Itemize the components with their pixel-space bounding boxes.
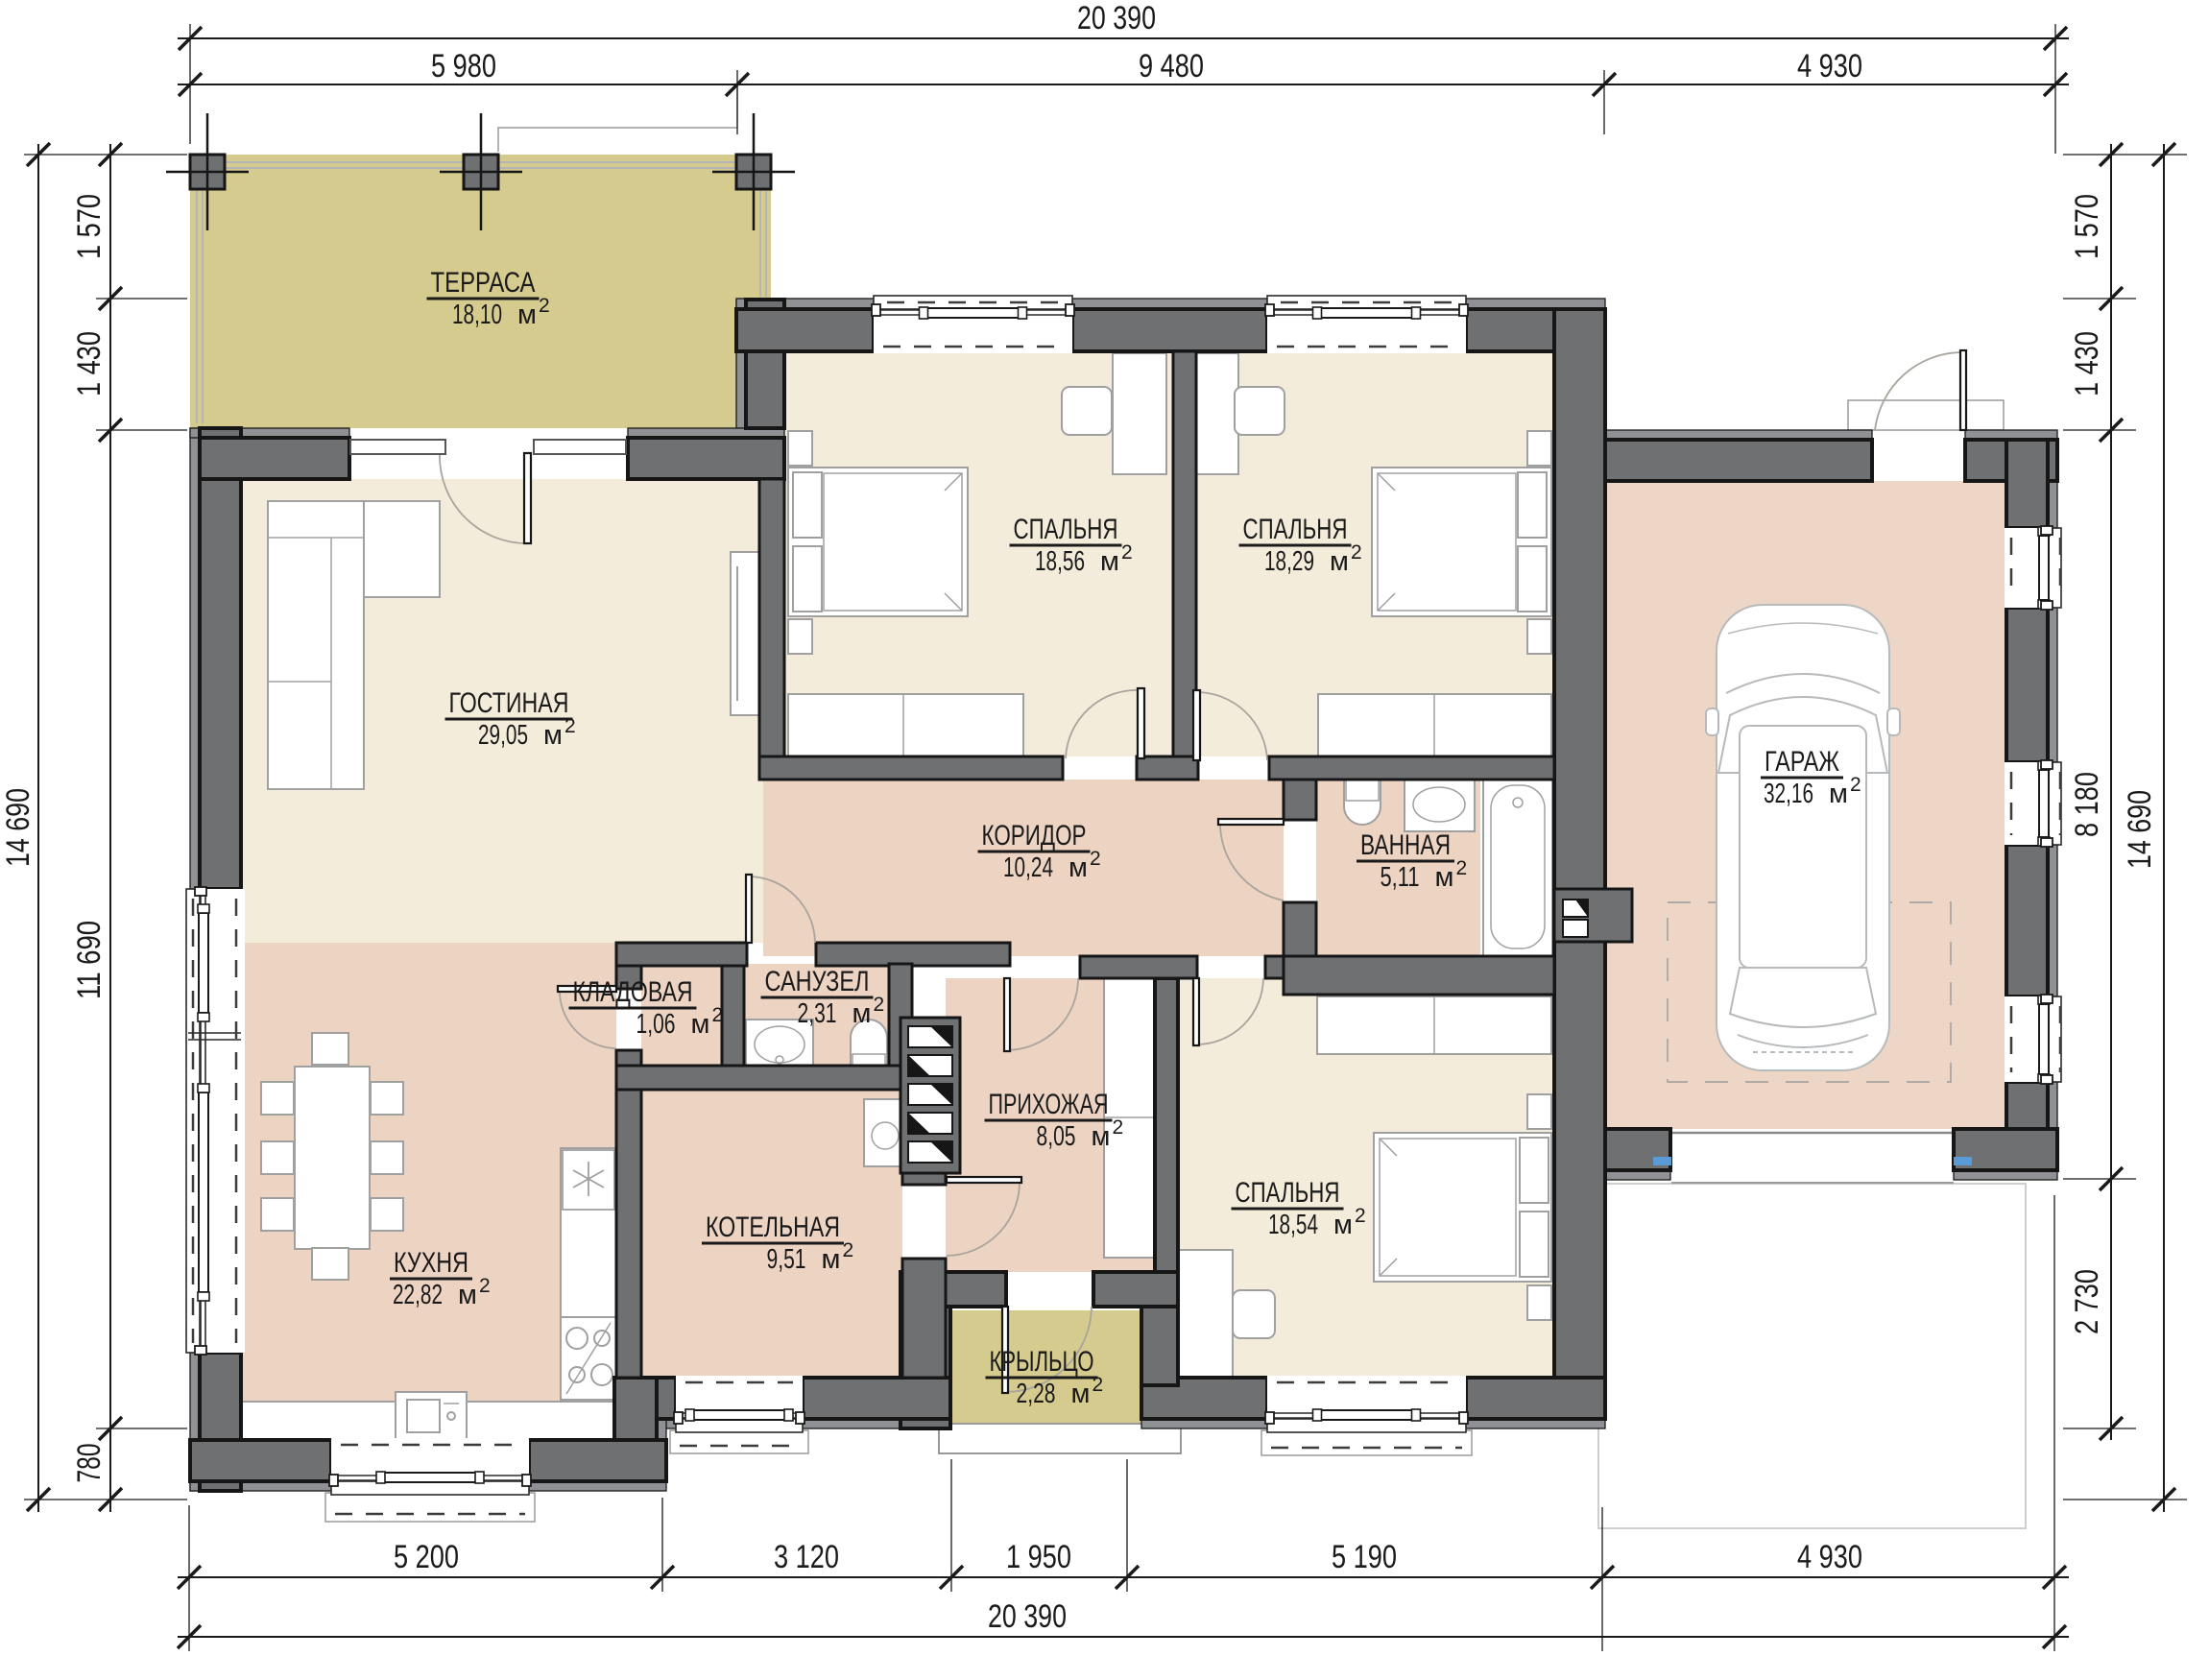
svg-text:1 430: 1 430 (2069, 331, 2105, 396)
svg-text:2: 2 (843, 1239, 854, 1261)
svg-text:3 120: 3 120 (774, 1539, 839, 1575)
svg-text:2,28: 2,28 (1017, 1379, 1056, 1409)
svg-text:м: м (1333, 1210, 1353, 1240)
svg-text:18,10: 18,10 (452, 300, 502, 330)
svg-text:КОТЕЛЬНАЯ: КОТЕЛЬНАЯ (706, 1212, 840, 1243)
svg-text:780: 780 (71, 1444, 108, 1483)
svg-text:5 980: 5 980 (431, 48, 496, 84)
svg-text:м: м (1071, 1379, 1091, 1409)
svg-text:32,16: 32,16 (1764, 779, 1813, 809)
svg-text:2: 2 (539, 295, 550, 317)
svg-text:4 930: 4 930 (1797, 48, 1862, 84)
svg-text:8 180: 8 180 (2069, 772, 2105, 837)
svg-text:ТЕРРАСА: ТЕРРАСА (431, 267, 536, 299)
svg-text:ПРИХОЖАЯ: ПРИХОЖАЯ (989, 1089, 1109, 1120)
svg-text:10,24: 10,24 (1003, 852, 1053, 883)
svg-text:м: м (517, 300, 537, 330)
svg-text:КРЫЛЬЦО: КРЫЛЬЦО (990, 1346, 1094, 1378)
svg-text:м: м (1435, 862, 1454, 893)
svg-text:КУХНЯ: КУХНЯ (394, 1247, 468, 1279)
svg-text:22,82: 22,82 (393, 1280, 443, 1310)
svg-text:СПАЛЬНЯ: СПАЛЬНЯ (1243, 514, 1348, 545)
svg-text:2: 2 (1121, 541, 1133, 564)
svg-text:2: 2 (1092, 1374, 1104, 1396)
svg-text:2: 2 (874, 994, 885, 1016)
svg-text:9 480: 9 480 (1139, 48, 1204, 84)
svg-text:ГОСТИНАЯ: ГОСТИНАЯ (449, 687, 569, 719)
svg-text:КОРИДОР: КОРИДОР (982, 820, 1087, 852)
svg-text:4 930: 4 930 (1797, 1539, 1862, 1575)
svg-text:14 690: 14 690 (0, 788, 36, 867)
svg-text:29,05: 29,05 (478, 720, 528, 751)
svg-text:18,29: 18,29 (1264, 546, 1314, 577)
svg-text:м: м (691, 1009, 710, 1040)
svg-text:2: 2 (1355, 1205, 1366, 1227)
svg-text:2: 2 (712, 1004, 724, 1026)
svg-text:5 190: 5 190 (1332, 1539, 1397, 1575)
svg-text:м: м (1330, 546, 1349, 577)
svg-text:1 950: 1 950 (1006, 1539, 1071, 1575)
svg-text:5,11: 5,11 (1381, 862, 1420, 893)
svg-text:2: 2 (1113, 1116, 1124, 1139)
svg-text:20 390: 20 390 (988, 1598, 1067, 1635)
svg-text:2,31: 2,31 (798, 998, 837, 1029)
svg-text:1 570: 1 570 (71, 194, 108, 259)
svg-text:1 570: 1 570 (2069, 194, 2105, 259)
svg-text:2: 2 (1456, 857, 1468, 879)
svg-text:14 690: 14 690 (2122, 790, 2158, 869)
svg-text:2 730: 2 730 (2069, 1269, 2105, 1334)
svg-text:2: 2 (1850, 774, 1861, 796)
svg-text:2: 2 (1090, 848, 1101, 870)
svg-text:1 430: 1 430 (71, 331, 108, 396)
svg-text:2: 2 (479, 1275, 491, 1297)
svg-text:м: м (1092, 1121, 1111, 1152)
svg-text:2: 2 (564, 715, 576, 737)
svg-text:м: м (1068, 852, 1088, 883)
svg-text:1,06: 1,06 (636, 1009, 676, 1040)
svg-text:8,05: 8,05 (1037, 1121, 1076, 1152)
svg-text:м: м (543, 720, 563, 751)
svg-text:м: м (458, 1280, 477, 1310)
svg-text:м: м (1100, 546, 1119, 577)
svg-text:11 690: 11 690 (71, 921, 108, 999)
svg-text:ГАРАЖ: ГАРАЖ (1765, 746, 1839, 778)
svg-text:СПАЛЬНЯ: СПАЛЬНЯ (1236, 1177, 1340, 1209)
svg-text:18,56: 18,56 (1035, 546, 1085, 577)
svg-text:СПАЛЬНЯ: СПАЛЬНЯ (1014, 514, 1118, 545)
svg-text:20 390: 20 390 (1077, 0, 1156, 36)
svg-text:САНУЗЕЛ: САНУЗЕЛ (765, 966, 870, 997)
svg-text:КЛАДОВАЯ: КЛАДОВАЯ (573, 976, 693, 1008)
svg-text:9,51: 9,51 (767, 1244, 806, 1275)
svg-text:м: м (1829, 779, 1848, 809)
svg-text:18,54: 18,54 (1268, 1210, 1318, 1240)
svg-text:2: 2 (1351, 541, 1362, 564)
svg-text:5 200: 5 200 (394, 1539, 459, 1575)
svg-text:м: м (852, 998, 872, 1029)
svg-text:м: м (822, 1244, 841, 1275)
svg-text:ВАННАЯ: ВАННАЯ (1360, 829, 1451, 861)
